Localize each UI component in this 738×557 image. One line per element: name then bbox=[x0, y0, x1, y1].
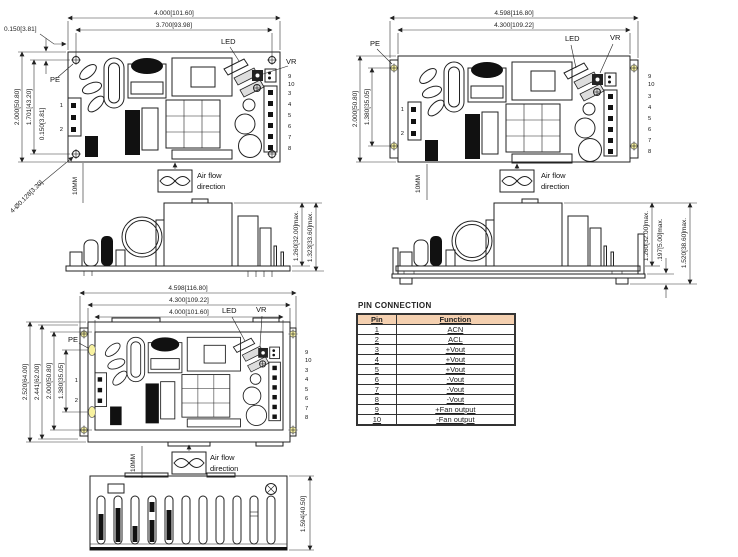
dim-height-slots: 1.380[35.05] bbox=[364, 89, 371, 125]
pin-label-4: 4 bbox=[288, 102, 292, 108]
dim-front-height: 1.594[40.50] bbox=[300, 496, 307, 532]
right-flange bbox=[290, 328, 296, 436]
pin-label-10: 10 bbox=[648, 82, 654, 88]
pcb-edge bbox=[396, 266, 640, 271]
side-components bbox=[70, 199, 284, 266]
pin-label-8: 8 bbox=[648, 149, 651, 155]
pin-label-6: 6 bbox=[305, 396, 308, 402]
dim-hole-offset-top: 0.150[3.81] bbox=[4, 26, 37, 33]
dim-width-outer: 4.598[116.80] bbox=[168, 285, 207, 292]
label-window bbox=[108, 484, 124, 493]
dim-standoff: .197[5.00]max. bbox=[657, 218, 664, 261]
pin-label-5: 5 bbox=[648, 116, 651, 122]
table-row: 4+Vout bbox=[357, 355, 515, 365]
pcb-edge bbox=[66, 266, 290, 271]
pin-label-6: 6 bbox=[288, 124, 291, 130]
view-chassis-top: 4.598[116.80] 4.300[109.22] 2.000[50.80]… bbox=[352, 10, 654, 200]
pin-label-3: 3 bbox=[648, 94, 651, 100]
chassis-base bbox=[392, 274, 645, 278]
screw-icon bbox=[266, 484, 277, 495]
pin-label-2: 2 bbox=[60, 127, 63, 133]
clearance-label: 10MM bbox=[72, 177, 79, 195]
dim-component-height: 1.260[32.00]max. bbox=[293, 211, 300, 261]
dim-height-outer: 2.000[50.80] bbox=[14, 89, 21, 125]
pin-label-4: 4 bbox=[648, 105, 652, 111]
view-chassis-full-top: 4.598[116.80] 4.300[109.22] 4.000[101.60… bbox=[22, 285, 311, 478]
dim-width-inner: 4.300[109.22] bbox=[169, 297, 209, 304]
dim-component-height: 1.260[32.00]max. bbox=[643, 211, 650, 261]
dim-width-outer: 4.598[116.80] bbox=[494, 10, 533, 17]
dim-depth-outer: 2.520[64.00] bbox=[22, 364, 29, 400]
dim-total-height: 1.520[38.60]max. bbox=[681, 218, 688, 268]
dim-width-pcb: 4.000[101.60] bbox=[169, 309, 209, 316]
pcb-components bbox=[95, 337, 280, 427]
table-row: 3+Vout bbox=[357, 345, 515, 355]
pin-label-6: 6 bbox=[648, 127, 651, 133]
mechanical-drawing-canvas: 4.000[101.60] 3.700[93.98] 0.150[3.81] 2… bbox=[0, 0, 738, 557]
pin-label-5: 5 bbox=[305, 387, 308, 393]
pin-label-8: 8 bbox=[305, 415, 308, 421]
vr-label: VR bbox=[286, 57, 297, 66]
dim-mounting-holes: 4-Ø0.128[3.20] bbox=[9, 179, 45, 215]
pin-label-5: 5 bbox=[288, 113, 291, 119]
fan-icon bbox=[502, 177, 532, 186]
view-chassis-side: 1.260[32.00]max. .197[5.00]max. 1.520[38… bbox=[392, 199, 697, 298]
table-row: 9+Fan output bbox=[357, 405, 515, 415]
airflow-indicator: Air flow direction bbox=[172, 445, 238, 474]
dim-width-holes: 3.700[93.98] bbox=[156, 22, 192, 29]
pin-label-7: 7 bbox=[648, 138, 651, 144]
pin-column-header: Pin bbox=[357, 314, 396, 325]
table-row: 2ACL bbox=[357, 335, 515, 345]
pin-connection-table: Pin Function 1ACN 2ACL 3+Vout 4+Vout 5+V… bbox=[356, 313, 516, 426]
pe-label: PE bbox=[370, 39, 380, 48]
dim-depth-slots: 1.380[35.05] bbox=[58, 363, 65, 399]
dim-depth-holes: 2.441[62.00] bbox=[34, 364, 41, 400]
pin-label-4: 4 bbox=[305, 377, 309, 383]
pcb-components bbox=[408, 62, 617, 163]
dim-depth-pcb: 2.000[50.80] bbox=[46, 363, 53, 399]
pin-label-7: 7 bbox=[305, 406, 308, 412]
function-column-header: Function bbox=[396, 314, 515, 325]
pin-label-3: 3 bbox=[288, 91, 291, 97]
side-components bbox=[400, 199, 614, 266]
table-row: 1ACN bbox=[357, 325, 515, 335]
clearance-label: 10MM bbox=[130, 454, 137, 472]
pin-label-3: 3 bbox=[305, 368, 308, 374]
pin-table-title: PIN CONNECTION bbox=[358, 301, 516, 310]
clearance-label: 10MM bbox=[415, 175, 422, 193]
airflow-label-2: direction bbox=[541, 182, 569, 191]
led-label: LED bbox=[565, 34, 580, 43]
pin-label-1: 1 bbox=[60, 103, 63, 109]
pe-label: PE bbox=[68, 335, 78, 344]
vr-label: VR bbox=[256, 305, 267, 314]
led-label: LED bbox=[221, 37, 236, 46]
airflow-label-1: Air flow bbox=[197, 171, 222, 180]
airflow-indicator: Air flow direction bbox=[158, 163, 225, 192]
airflow-label-2: direction bbox=[210, 464, 238, 473]
vent-slots bbox=[97, 496, 275, 544]
table-row: 8-Vout bbox=[357, 395, 515, 405]
airflow-label-2: direction bbox=[197, 182, 225, 191]
dim-width-inner: 4.300[109.22] bbox=[494, 22, 534, 29]
pin-label-1: 1 bbox=[401, 107, 404, 113]
pin-label-2: 2 bbox=[401, 131, 404, 137]
dim-height-outer: 2.000[50.80] bbox=[352, 91, 359, 127]
pin-label-9: 9 bbox=[648, 74, 651, 80]
dim-height-holes: 1.701[43.20] bbox=[26, 89, 33, 125]
view-pcb-top: 4.000[101.60] 3.700[93.98] 0.150[3.81] 2… bbox=[4, 10, 297, 215]
table-row: 5+Vout bbox=[357, 365, 515, 375]
pin-label-10: 10 bbox=[288, 82, 294, 88]
fan-icon bbox=[174, 459, 204, 468]
pin-label-2: 2 bbox=[75, 398, 78, 404]
view-front: 1.594[40.50] bbox=[90, 473, 314, 550]
table-row: 7-Vout bbox=[357, 385, 515, 395]
fan-icon bbox=[160, 177, 190, 186]
dim-hole-offset-left: 0.150[3.81] bbox=[39, 108, 46, 141]
view-pcb-side: 1.260[32.00]max. 1.323[33.60]max. bbox=[66, 199, 324, 277]
airflow-label-1: Air flow bbox=[541, 171, 566, 180]
table-row: 6-Vout bbox=[357, 375, 515, 385]
pcb-components bbox=[68, 58, 277, 159]
dim-total-height: 1.323[33.60]max. bbox=[307, 212, 314, 262]
table-row: 10-Fan output bbox=[357, 415, 515, 426]
pin-connection-section: PIN CONNECTION Pin Function 1ACN 2ACL 3+… bbox=[356, 301, 516, 426]
led-label: LED bbox=[222, 306, 237, 315]
airflow-label-1: Air flow bbox=[210, 453, 235, 462]
pin-label-1: 1 bbox=[75, 378, 78, 384]
dim-width-outer: 4.000[101.60] bbox=[154, 10, 194, 17]
pin-label-10: 10 bbox=[305, 358, 311, 364]
vr-label: VR bbox=[610, 33, 621, 42]
drawing-svg: 4.000[101.60] 3.700[93.98] 0.150[3.81] 2… bbox=[0, 0, 738, 557]
pin-label-7: 7 bbox=[288, 135, 291, 141]
pin-label-9: 9 bbox=[305, 350, 308, 356]
airflow-indicator: Air flow direction bbox=[500, 164, 569, 192]
pin-label-8: 8 bbox=[288, 146, 291, 152]
pin-label-9: 9 bbox=[288, 74, 291, 80]
